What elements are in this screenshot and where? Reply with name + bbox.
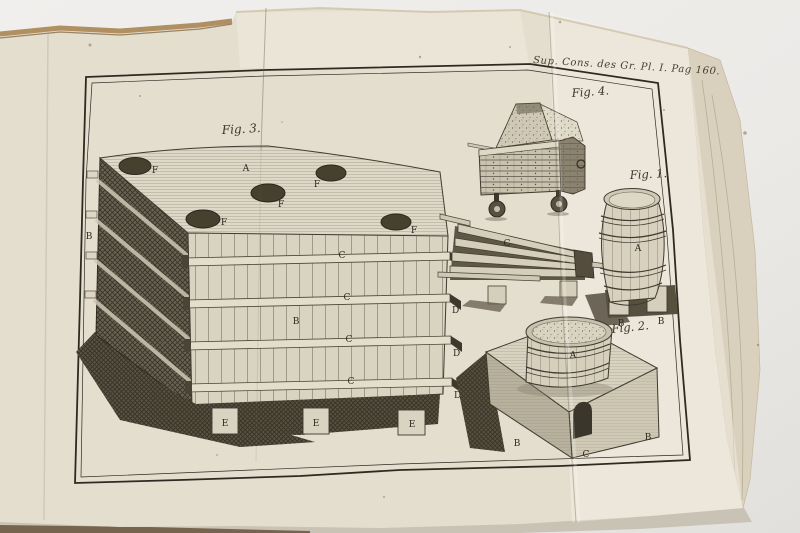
- fig3-letter-b-front: B: [293, 317, 300, 327]
- figure-3-label: Fig. 3.: [220, 121, 261, 137]
- fig2-letter-b1: B: [514, 439, 521, 449]
- fig3-letter-d2: D: [452, 306, 459, 316]
- fig1-letter-a: A: [634, 244, 642, 254]
- fig3-letter-c1: C: [339, 251, 346, 261]
- fig1-barrel-top: [609, 192, 655, 208]
- fig3-letter-f4: F: [221, 218, 227, 228]
- launder-letter-c: C: [504, 239, 511, 249]
- fig3-letter-e2: E: [313, 419, 320, 429]
- fig3-letter-b-margin: B: [86, 232, 93, 242]
- fig3-letter-f3: F: [278, 200, 284, 210]
- fig3-letter-f2: F: [314, 180, 320, 190]
- fig4-wheel-shadow: [547, 212, 569, 216]
- figure-3-press: Fig. 3. A F F F F: [76, 121, 463, 447]
- fig4-wheel-shadow: [485, 217, 507, 221]
- photo-of-open-book-engraved-plate: Sup. Cons. des Gr. Pl. I. Pag 160. Fig. …: [0, 0, 800, 533]
- fig3-letter-e1: E: [222, 419, 229, 429]
- launder-foot-right: [560, 281, 577, 297]
- fig2-letter-c: C: [583, 450, 590, 460]
- plate-artwork: Sup. Cons. des Gr. Pl. I. Pag 160. Fig. …: [0, 0, 800, 533]
- fig3-letter-f1: F: [152, 166, 158, 176]
- fig2-arch-door: [573, 402, 592, 439]
- fig1-letter-b2: B: [658, 317, 665, 327]
- fig3-letter-a: A: [242, 164, 250, 174]
- fig3-letter-c2: C: [344, 293, 351, 303]
- fig3-letter-e3: E: [409, 420, 416, 430]
- fig4-body-side-bricks: [559, 137, 585, 194]
- fig4-wheel-left-hub: [494, 206, 500, 212]
- fig3-letter-c3: C: [346, 335, 353, 345]
- figure-1-label: Fig. 1.: [628, 166, 667, 182]
- fig2-letter-b2: B: [645, 433, 652, 443]
- fig3-letter-c4: C: [348, 377, 355, 387]
- fig3-letter-d3: D: [453, 349, 460, 359]
- launder-end-block: [574, 250, 594, 278]
- fold-highlight-strip: [236, 10, 530, 70]
- launder-foot-left: [488, 286, 506, 304]
- figure-4-label: Fig. 4.: [570, 83, 609, 100]
- fig3-letter-f5: F: [411, 226, 417, 236]
